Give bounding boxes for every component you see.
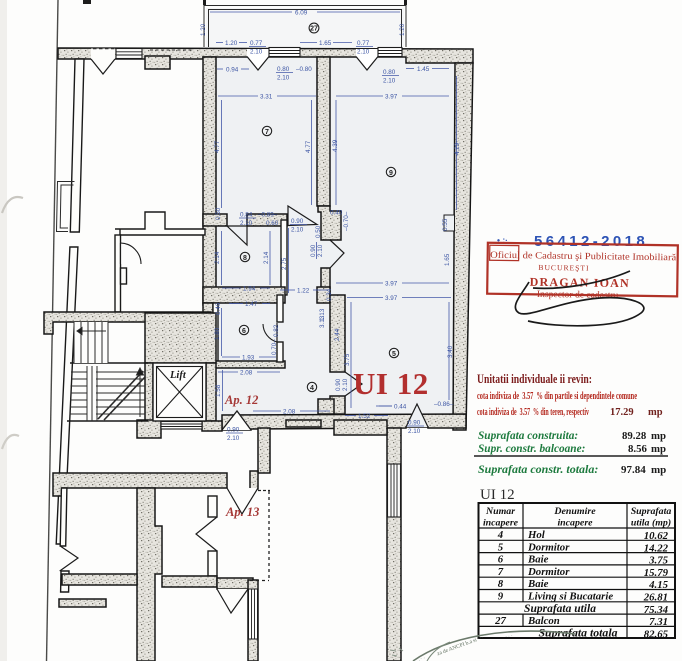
svg-text:Suprafata constr. totala:: Suprafata constr. totala: [478,462,598,476]
svg-text:Dormitor: Dormitor [527,566,570,578]
svg-text:0.90: 0.90 [408,420,421,427]
svg-text:8: 8 [243,255,247,262]
svg-text:2.10: 2.10 [342,378,349,391]
svg-text:2.10: 2.10 [357,49,370,56]
svg-text:17.29: 17.29 [610,407,634,418]
svg-text:0.84: 0.84 [240,212,253,219]
svg-text:3.31: 3.31 [260,94,273,101]
svg-text:1.65: 1.65 [444,253,451,266]
svg-text:2.08: 2.08 [283,409,296,416]
svg-text:14.22: 14.22 [644,542,669,554]
svg-text:4: 4 [497,529,504,541]
svg-text:97.84: 97.84 [621,464,646,476]
svg-text:0.50: 0.50 [315,225,322,238]
svg-text:2.14: 2.14 [214,251,221,264]
svg-text:56412-2018: 56412-2018 [534,233,648,250]
svg-text:4.29: 4.29 [454,142,461,155]
svg-text:7: 7 [498,566,504,578]
svg-text:9: 9 [389,170,393,177]
svg-text:0.46: 0.46 [215,302,222,315]
svg-text:1.22: 1.22 [297,288,310,295]
svg-text:0.55: 0.55 [442,218,449,231]
svg-text:4.77: 4.77 [214,140,221,153]
svg-text:7.31: 7.31 [649,616,668,628]
svg-text:6: 6 [242,328,246,335]
svg-text:3.13: 3.13 [319,315,326,328]
svg-text:Suprafata totala: Suprafata totala [539,626,618,640]
svg-text:2.10: 2.10 [227,435,240,442]
svg-text:1.20: 1.20 [225,40,238,47]
svg-text:Lift: Lift [169,370,187,381]
svg-text:8.56: 8.56 [628,443,647,455]
svg-text:mp: mp [651,464,666,476]
svg-text:1.45: 1.45 [417,66,430,73]
svg-text:0.70–: 0.70– [271,339,278,355]
svg-text:3.97: 3.97 [385,94,398,101]
svg-text:2.44: 2.44 [334,328,341,341]
svg-text:mp: mp [648,407,663,418]
svg-text:mp: mp [651,430,666,442]
svg-text:cota indiviza de 3.57 % din: cota indiviza de 3.57 % din partile si d… [477,391,637,402]
svg-text:1.47: 1.47 [245,301,258,308]
svg-text:Hol: Hol [527,529,545,541]
svg-text:Suprafata construita:: Suprafata construita: [478,430,578,442]
svg-text:0.44: 0.44 [394,404,407,411]
svg-text:4.77: 4.77 [305,140,312,153]
svg-text:27: 27 [494,615,506,627]
svg-text:–0.86–: –0.86– [434,401,454,408]
svg-text:0.90: 0.90 [291,218,304,225]
svg-text:5: 5 [498,541,504,553]
svg-text:6.09: 6.09 [295,10,308,17]
svg-text:cota indiviza de 3.57 % din: cota indiviza de 3.57 % din teren, respe… [477,407,589,418]
svg-text:0.34: 0.34 [326,288,333,301]
svg-text:incapere: incapere [483,518,519,529]
svg-text:Ap. 13: Ap. 13 [225,505,259,519]
svg-text:UI 12: UI 12 [480,487,515,503]
svg-text:0.94: 0.94 [226,67,239,74]
svg-text:BUCUREŞTI: BUCUREŞTI [538,263,589,273]
svg-text:0.80: 0.80 [383,69,396,76]
svg-text:15.79: 15.79 [644,567,669,579]
svg-text:4.39: 4.39 [332,139,339,152]
svg-text:1.80: 1.80 [214,327,221,340]
svg-text:1.94: 1.94 [243,286,256,293]
svg-text:2.10: 2.10 [317,244,324,257]
svg-text:Supr. constr. balcoane:: Supr. constr. balcoane: [478,443,585,455]
svg-text:3.97: 3.97 [385,295,398,302]
svg-text:9: 9 [498,591,504,603]
svg-text:89.28: 89.28 [622,430,647,442]
svg-text:Suprafata: Suprafata [631,506,672,517]
svg-text:incapere: incapere [557,518,593,529]
svg-text:Inspector de cadastru: Inspector de cadastru [537,289,619,301]
svg-text:0.60: 0.60 [266,220,279,227]
svg-text:0.80: 0.80 [277,66,290,73]
svg-text:3.75: 3.75 [344,353,351,366]
svg-text:27: 27 [310,25,318,32]
svg-text:5: 5 [392,351,396,358]
svg-text:2.10: 2.10 [408,428,421,435]
svg-text:–0.89–: –0.89– [258,212,278,219]
svg-text:0.82: 0.82 [273,324,280,337]
svg-text:2.14: 2.14 [263,251,270,264]
svg-text:3.97: 3.97 [385,281,398,288]
svg-text:2.10: 2.10 [291,227,304,234]
svg-text:0.90: 0.90 [335,378,342,391]
svg-text:–0.70–: –0.70– [343,211,350,231]
svg-text:1.65: 1.65 [319,40,332,47]
svg-text:UI 12: UI 12 [353,366,429,401]
svg-text:mp: mp [651,443,666,455]
svg-text:Baie: Baie [527,554,549,566]
svg-text:Baie: Baie [527,578,549,590]
svg-text:2.10: 2.10 [383,78,396,85]
svg-text:3.75: 3.75 [648,555,668,567]
svg-text:0.90: 0.90 [310,244,317,257]
svg-text:7: 7 [265,129,269,136]
svg-text:6: 6 [498,554,504,566]
svg-text:0.77: 0.77 [357,40,370,47]
svg-text:2.10: 2.10 [240,220,253,227]
svg-text:–0.80: –0.80 [296,66,312,73]
svg-text:1.93: 1.93 [242,355,255,362]
svg-text:0.50: 0.50 [215,207,222,220]
svg-text:0.90: 0.90 [227,427,240,434]
svg-text:4: 4 [310,385,314,392]
svg-text:3.40: 3.40 [447,345,454,358]
svg-text:Denumire: Denumire [553,506,596,517]
svg-text:75.34: 75.34 [644,604,669,616]
svg-text:2.08: 2.08 [240,370,253,377]
svg-text:Suprafata utila: Suprafata utila [524,603,596,615]
svg-text:utila (mp): utila (mp) [631,518,671,529]
svg-text:82.65: 82.65 [644,628,669,640]
svg-text:2.75: 2.75 [281,257,288,270]
svg-text:Numar: Numar [485,506,515,517]
svg-text:Dormitor: Dormitor [527,541,570,553]
svg-text:8: 8 [498,578,504,590]
svg-text:2.10: 2.10 [277,75,290,82]
svg-text:4.15: 4.15 [648,579,668,591]
svg-text:10.62: 10.62 [644,530,669,542]
svg-text:2.10: 2.10 [250,49,263,56]
svg-text:0.77: 0.77 [250,40,263,47]
svg-text:1.52: 1.52 [358,413,371,420]
svg-text:Ap. 12: Ap. 12 [224,393,258,407]
svg-text:0.40: 0.40 [330,210,343,217]
svg-text:26.81: 26.81 [643,592,668,604]
svg-text:1.20: 1.20 [399,23,406,36]
svg-text:Unitatii individuale ii revin:: Unitatii individuale ii revin: [477,371,592,386]
svg-text:Living si Bucatarie: Living si Bucatarie [527,591,613,603]
svg-text:1.20: 1.20 [200,23,207,36]
svg-text:1.58: 1.58 [215,384,222,397]
